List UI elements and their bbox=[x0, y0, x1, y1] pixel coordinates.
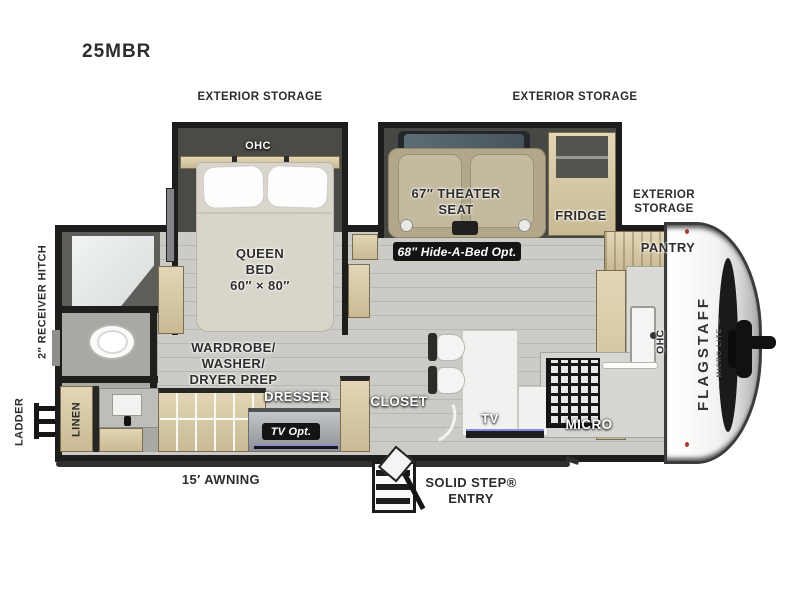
brand-logo: FLAGSTAFF bbox=[692, 258, 716, 448]
entry-step-tread bbox=[376, 484, 410, 490]
vanity-drawer bbox=[99, 428, 143, 452]
exterior-storage-label-front: EXTERIOR STORAGE bbox=[614, 188, 714, 216]
ladder-icon bbox=[34, 400, 58, 442]
brand-sub-logo: — MICRO LITE — bbox=[714, 300, 726, 406]
dinette-chair-back bbox=[428, 366, 437, 394]
dinette-chair bbox=[437, 334, 465, 361]
floorplan-canvas: 25MBR EXTERIOR STORAGE EXTERIOR STORAGE … bbox=[0, 0, 800, 600]
bed-window bbox=[166, 188, 175, 262]
theater-label-line2: SEAT bbox=[400, 202, 512, 218]
hitch-arm bbox=[750, 336, 776, 349]
entry-label-line2: ENTRY bbox=[406, 491, 536, 507]
dresser-tv-screen bbox=[254, 444, 338, 449]
queen-bed-label: QUEEN BED 60″ × 80″ bbox=[205, 246, 315, 294]
shower-wall bbox=[62, 306, 160, 313]
fridge-shelf bbox=[556, 156, 608, 159]
nightstand-right bbox=[348, 264, 370, 318]
bed-pillow bbox=[202, 165, 264, 209]
top-wall-cabinet bbox=[352, 234, 378, 260]
awning-rail bbox=[56, 461, 570, 467]
hide-a-bed-badge: 68″ Hide-A-Bed Opt. bbox=[393, 242, 521, 261]
wardrobe-label-line2: WASHER/ bbox=[176, 356, 291, 372]
dinette-chair-back bbox=[428, 333, 437, 361]
bed-ohc-label: OHC bbox=[235, 140, 281, 153]
theater-label-line1: 67″ THEATER bbox=[400, 186, 512, 202]
wardrobe-label-line3: DRYER PREP bbox=[176, 372, 291, 388]
bed-pillow bbox=[266, 165, 328, 209]
wardrobe-label: WARDROBE/ WASHER/ DRYER PREP bbox=[176, 340, 291, 388]
receiver-hitch-label: 2″ RECEIVER HITCH bbox=[34, 226, 52, 378]
theater-cupholder bbox=[400, 219, 413, 232]
closet-label: CLOSET bbox=[366, 394, 432, 410]
ladder-rung bbox=[34, 419, 56, 424]
toilet-seat bbox=[97, 330, 128, 354]
micro-label: MICRO bbox=[556, 417, 622, 433]
tv-label: TV bbox=[472, 412, 508, 427]
ladder-label: LADDER bbox=[12, 390, 28, 454]
ladder-rung bbox=[34, 432, 56, 437]
bed-fold-line bbox=[198, 212, 332, 214]
linen-label: LINEN bbox=[64, 396, 90, 444]
entry-step-tread bbox=[376, 498, 410, 504]
theater-console bbox=[452, 221, 478, 235]
hitch-jack bbox=[736, 320, 752, 378]
tv-screen bbox=[466, 431, 544, 438]
tv-opt-badge: TV Opt. bbox=[262, 423, 320, 440]
awning-label: 15′ AWNING bbox=[166, 472, 276, 488]
nightstand-left bbox=[158, 266, 184, 334]
vanity-faucet bbox=[124, 416, 131, 426]
solid-step-entry-label: SOLID STEP® ENTRY bbox=[406, 475, 536, 507]
page-title: 25MBR bbox=[82, 40, 151, 63]
bed-label-line1: QUEEN bbox=[205, 246, 315, 262]
closet-cabinet bbox=[340, 376, 370, 452]
entry-label-line1: SOLID STEP® bbox=[406, 475, 536, 491]
exterior-storage-label-bedroom: EXTERIOR STORAGE bbox=[195, 90, 325, 104]
dresser-label: DRESSER bbox=[252, 390, 342, 405]
bed-label-line2: BED bbox=[205, 262, 315, 278]
bath-window bbox=[52, 330, 60, 366]
bed-label-size: 60″ × 80″ bbox=[205, 278, 315, 294]
cap-marker bbox=[685, 442, 689, 447]
counter-vent-bar bbox=[602, 362, 658, 369]
kitchen-ohc-label: OHC bbox=[653, 318, 669, 366]
dinette-chair bbox=[437, 367, 465, 394]
bath-wall-lower bbox=[62, 376, 158, 383]
exterior-storage-label-living: EXTERIOR STORAGE bbox=[510, 90, 640, 104]
vanity-sink bbox=[112, 394, 142, 416]
fridge-label: FRIDGE bbox=[546, 208, 616, 224]
cap-marker bbox=[685, 229, 689, 234]
pantry-label: PANTRY bbox=[628, 240, 708, 256]
wardrobe-label-line1: WARDROBE/ bbox=[176, 340, 291, 356]
theater-seat-label: 67″ THEATER SEAT bbox=[400, 186, 512, 218]
ladder-rung bbox=[34, 406, 56, 411]
theater-cupholder bbox=[518, 219, 531, 232]
